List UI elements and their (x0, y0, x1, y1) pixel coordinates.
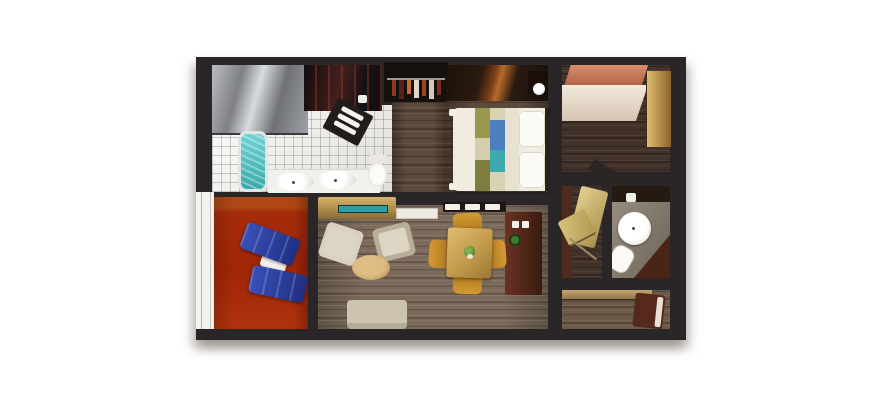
bed-runner-teal (490, 150, 505, 172)
room-study (562, 290, 670, 329)
tv-screen (338, 205, 388, 213)
master-bed (453, 108, 548, 191)
tall-wardrobe (646, 71, 671, 147)
floor-plan-canvas (0, 0, 881, 400)
study-chair (632, 293, 665, 330)
chair-cushion (654, 297, 663, 327)
second-bed (562, 85, 648, 121)
room-balcony (196, 192, 318, 329)
bed-foot-tab (449, 183, 457, 190)
table-plant-pot (467, 254, 473, 259)
sofa (347, 300, 407, 329)
pillow (519, 152, 545, 188)
bar-plant (509, 234, 521, 246)
armchair-cushion (378, 227, 411, 257)
bed-runner-cream (490, 108, 505, 120)
bar-cabinet (505, 212, 542, 295)
bed-runner-cream (475, 138, 490, 160)
bar-cup (522, 221, 529, 228)
bed-runner-olive (475, 108, 490, 138)
bed-foot-tab (449, 109, 457, 116)
hanging-garment (414, 80, 419, 98)
entry-ceiling-salmon (564, 65, 648, 87)
tray-counter (443, 202, 506, 212)
bath-fixture-band (612, 186, 670, 202)
toilet-bowl (368, 162, 387, 187)
basin-drain-dot (632, 227, 635, 230)
tray (445, 204, 460, 210)
hanging-garment (429, 80, 434, 99)
hanging-garment (437, 80, 441, 95)
tray (465, 204, 480, 210)
hanging-garment (422, 80, 426, 96)
toilet-icon (368, 155, 388, 189)
bed-runner-blue (490, 120, 505, 150)
sink-counter (268, 169, 380, 193)
shower-icon (212, 65, 308, 135)
bath-cup (358, 95, 367, 103)
bed-sheet-center (505, 108, 519, 191)
oval-ottoman (352, 255, 390, 280)
room-second-bedroom (562, 65, 670, 172)
tray (485, 204, 500, 210)
white-shelf (396, 208, 438, 219)
faucet-dot (292, 181, 295, 184)
balcony-railing (196, 192, 214, 329)
room-closet (384, 62, 448, 102)
bar-cup (512, 221, 519, 228)
suite-floor-plan (196, 57, 686, 340)
toilet-icon (612, 242, 637, 276)
bed-runner-olive-dark (475, 160, 490, 191)
room-second-bathroom (612, 186, 670, 278)
hanging-garment (392, 80, 396, 96)
armchair-cushion (324, 227, 359, 260)
lamp-icon (533, 83, 545, 95)
room-living (318, 192, 548, 329)
bathtub (238, 131, 268, 192)
room-master-bathroom (212, 65, 392, 192)
faucet-dot (334, 179, 337, 182)
pillow (519, 111, 545, 147)
hanging-garment (407, 80, 411, 94)
bed-runner-cream (490, 172, 505, 191)
hanging-garment (399, 80, 404, 99)
headboard (545, 108, 548, 191)
room-chaise-nook (562, 186, 602, 278)
bath-cup (626, 193, 636, 202)
room-master-bedroom (446, 65, 548, 192)
